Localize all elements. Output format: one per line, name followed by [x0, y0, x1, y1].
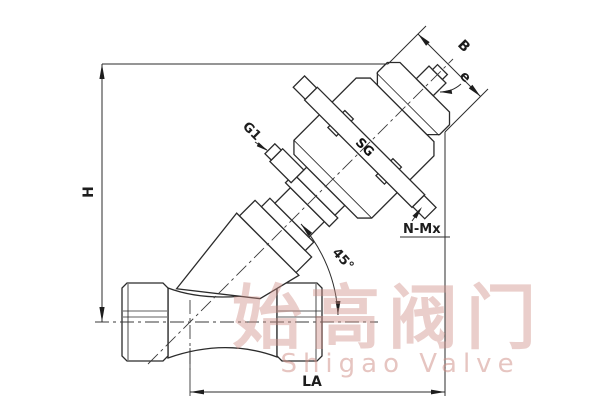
e-label: e	[456, 68, 474, 86]
h-arrow-bottom	[99, 307, 104, 322]
e-leader-arrow	[440, 90, 452, 95]
la-arrow-left	[190, 390, 204, 395]
watermark-chinese: 始高阀门	[232, 277, 544, 359]
watermark: 始高阀门 Shigao Valve	[232, 277, 544, 379]
g1-label: G1	[239, 119, 264, 144]
h-label: H	[81, 186, 97, 198]
leader-g1: G1	[239, 119, 268, 151]
angle-seat-valve-drawing: SG H B e	[0, 0, 600, 400]
h-arrow-top	[99, 64, 104, 79]
watermark-english: Shigao Valve	[280, 349, 519, 379]
technical-drawing-page: SG H B e	[0, 0, 600, 400]
b-label: B	[454, 37, 473, 56]
la-arrow-right	[431, 390, 445, 395]
angle-label: 45°	[329, 246, 357, 274]
g1-leader-arrow	[257, 142, 268, 151]
nmx-label: N-Mx	[403, 222, 441, 237]
b-extension-2	[445, 89, 488, 132]
b-extension-1	[388, 26, 426, 64]
